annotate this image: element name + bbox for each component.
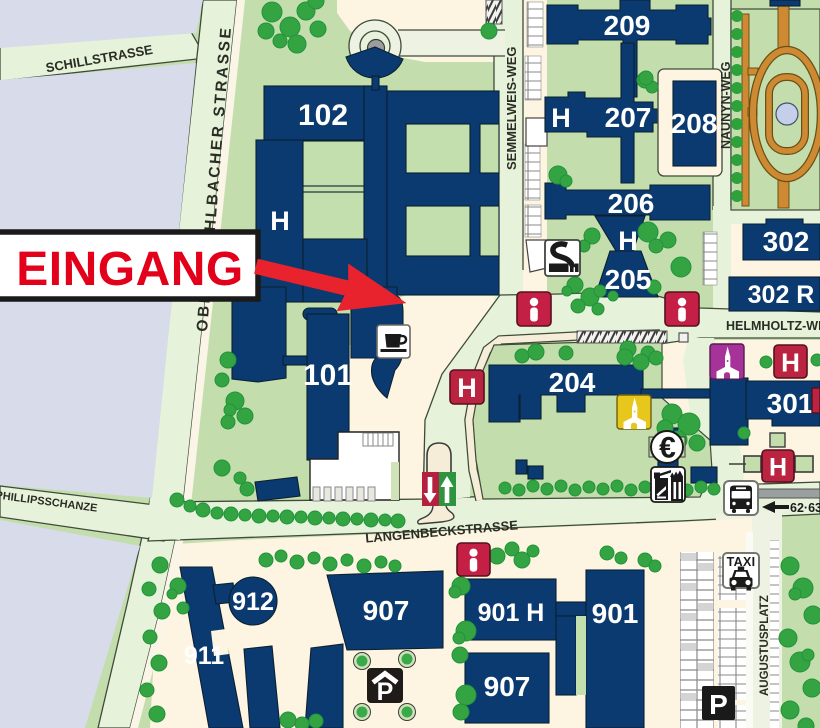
- svg-text:302 R: 302 R: [748, 281, 815, 309]
- svg-text:AUGUSTUSPLATZ: AUGUSTUSPLATZ: [759, 595, 771, 696]
- svg-text:101: 101: [303, 359, 353, 392]
- svg-text:204: 204: [549, 367, 596, 398]
- svg-text:€: €: [659, 432, 676, 465]
- svg-text:H: H: [551, 103, 571, 133]
- svg-text:102: 102: [298, 99, 348, 132]
- svg-text:207: 207: [605, 102, 652, 133]
- svg-text:205: 205: [605, 264, 652, 295]
- svg-text:208: 208: [671, 108, 718, 139]
- svg-text:EINGANG: EINGANG: [16, 243, 244, 296]
- svg-text:206: 206: [608, 188, 655, 219]
- svg-text:H: H: [781, 348, 800, 378]
- svg-text:901: 901: [592, 598, 639, 629]
- svg-text:SEMMELWEIS-WEG: SEMMELWEIS-WEG: [504, 47, 519, 171]
- svg-text:907: 907: [363, 595, 410, 626]
- svg-text:P: P: [377, 678, 394, 706]
- svg-text:907: 907: [484, 671, 531, 702]
- svg-text:301: 301: [767, 388, 814, 419]
- svg-text:NAUNYN-WEG: NAUNYN-WEG: [719, 62, 733, 150]
- svg-text:912: 912: [232, 588, 274, 616]
- svg-text:H: H: [769, 454, 787, 482]
- svg-text:911: 911: [184, 642, 224, 670]
- svg-text:302: 302: [763, 226, 810, 257]
- svg-text:209: 209: [604, 10, 651, 41]
- svg-text:P: P: [709, 689, 728, 720]
- svg-text:H: H: [457, 373, 477, 403]
- svg-text:H: H: [618, 226, 638, 256]
- svg-text:H: H: [270, 206, 290, 236]
- svg-text:HELMHOLTZ-WEG: HELMHOLTZ-WEG: [726, 319, 820, 333]
- svg-text:62·63: 62·63: [790, 501, 820, 515]
- svg-text:901 H: 901 H: [478, 599, 545, 627]
